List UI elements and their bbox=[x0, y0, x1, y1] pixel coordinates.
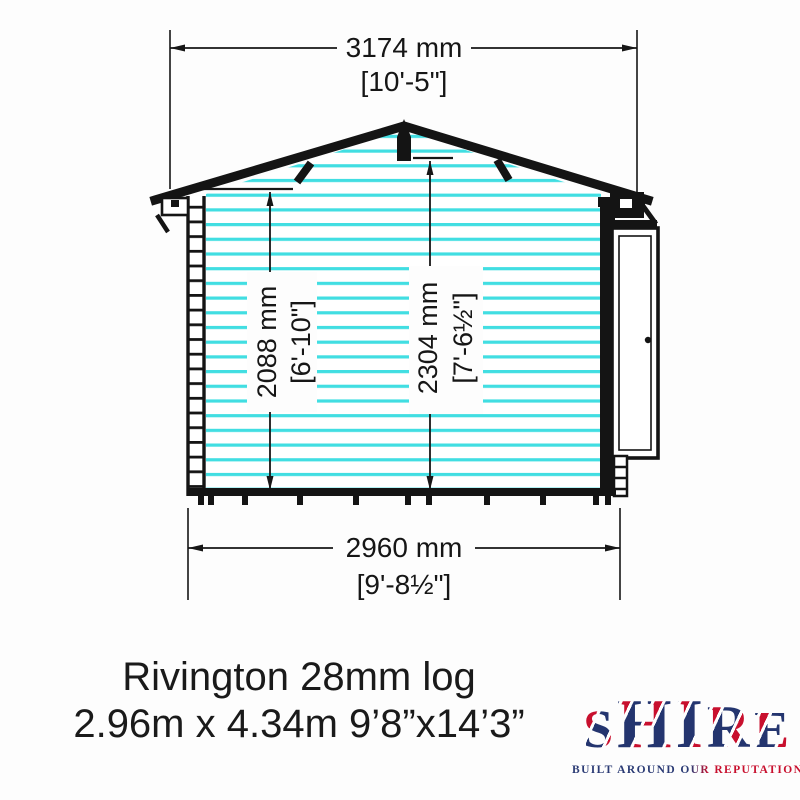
logo-letter-h: H bbox=[617, 690, 671, 760]
logo-letter-i: I bbox=[676, 690, 703, 760]
logo-letter-s: S bbox=[583, 702, 613, 756]
roof-width-imperial: [10'-5"] bbox=[361, 66, 448, 97]
logo-letter-e: E bbox=[754, 705, 789, 757]
door-open bbox=[612, 228, 658, 458]
base-width-metric: 2960 mm bbox=[346, 532, 463, 563]
elevation-drawing: 3174 mm [10'-5"] 2960 mm [9'-8½"] 2088 m… bbox=[0, 0, 800, 620]
ridge-height-imperial: [7'-6½"] bbox=[448, 292, 478, 383]
cabin-elevation-diagram: 3174 mm [10'-5"] 2960 mm [9'-8½"] 2088 m… bbox=[0, 0, 800, 800]
left-eave-bracket bbox=[157, 198, 188, 232]
base-feet bbox=[198, 496, 611, 505]
shire-tagline: BUILT AROUND OUR REPUTATION bbox=[572, 764, 800, 776]
product-size: 2.96m x 4.34m 9’8”x14’3” bbox=[2, 701, 596, 748]
product-name: Rivington 28mm log bbox=[2, 654, 596, 701]
eaves-height-metric: 2088 mm bbox=[252, 286, 282, 399]
product-caption: Rivington 28mm log 2.96m x 4.34m 9’8”x14… bbox=[2, 654, 596, 748]
door-knob bbox=[645, 337, 651, 343]
base-width-imperial: [9'-8½"] bbox=[357, 569, 452, 600]
eaves-height-imperial: [6'-10"] bbox=[286, 300, 316, 384]
logo-letter-r: R bbox=[707, 697, 750, 757]
shire-logo-letters: SHIRE bbox=[572, 690, 800, 760]
ridge-height-metric: 2304 mm bbox=[413, 282, 443, 395]
roof-width-metric: 3174 mm bbox=[346, 32, 463, 63]
shire-logo: SHIRE BUILT AROUND OUR REPUTATION bbox=[572, 690, 800, 776]
